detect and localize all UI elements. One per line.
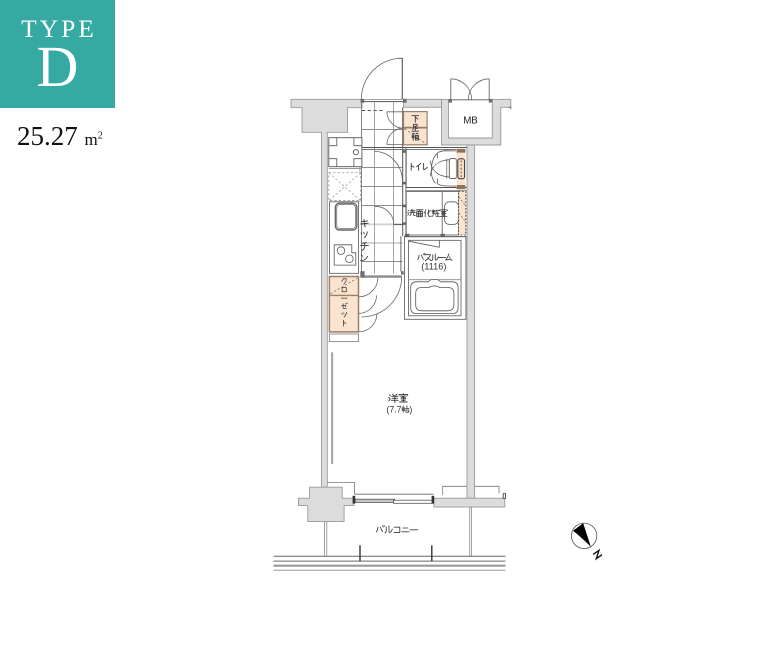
svg-text:MB: MB bbox=[463, 115, 478, 126]
svg-text:): ) bbox=[409, 404, 412, 414]
svg-text:(7.7: (7.7 bbox=[386, 404, 401, 414]
svg-text:(1116): (1116) bbox=[421, 262, 446, 272]
